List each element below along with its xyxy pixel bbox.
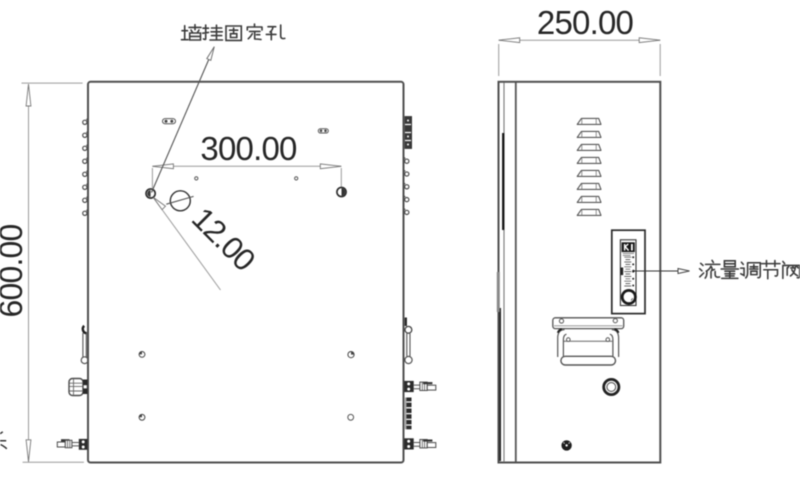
svg-text:250.00: 250.00 [537,4,634,41]
svg-text:300.00: 300.00 [200,130,297,167]
svg-text:600.00: 600.00 [0,224,29,317]
